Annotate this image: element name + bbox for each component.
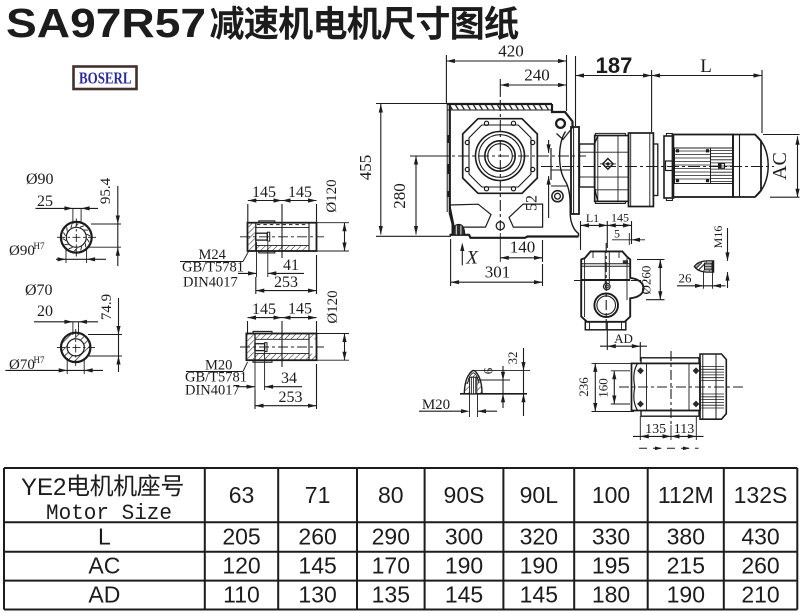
svg-text:34: 34 (281, 370, 297, 387)
svg-text:41: 41 (283, 257, 299, 274)
svg-text:300: 300 (445, 524, 483, 550)
svg-text:AC: AC (88, 553, 120, 579)
svg-text:145: 145 (298, 553, 336, 579)
svg-text:Motor Size: Motor Size (46, 501, 172, 526)
svg-text:95.4: 95.4 (98, 177, 114, 204)
svg-text:420: 420 (498, 42, 524, 61)
svg-text:90L: 90L (520, 482, 559, 508)
svg-text:205: 205 (222, 524, 260, 550)
svg-text:170: 170 (372, 553, 410, 579)
svg-text:135: 135 (645, 422, 666, 437)
svg-text:X: X (465, 248, 479, 269)
svg-text:132S: 132S (734, 482, 788, 508)
svg-text:236: 236 (576, 377, 591, 397)
svg-text:190: 190 (667, 582, 705, 608)
svg-text:160: 160 (596, 378, 611, 398)
svg-text:90S: 90S (444, 482, 485, 508)
svg-text:Ø70: Ø70 (25, 282, 53, 299)
svg-text:380: 380 (667, 524, 705, 550)
svg-text:BOSERL: BOSERL (79, 69, 132, 88)
svg-text:Ø90: Ø90 (9, 243, 35, 259)
svg-text:112M: 112M (658, 482, 714, 508)
svg-text:455: 455 (356, 155, 375, 181)
svg-text:DIN4017: DIN4017 (185, 383, 240, 399)
svg-text:190: 190 (445, 553, 483, 579)
svg-text:145: 145 (252, 184, 276, 201)
svg-text:L: L (98, 524, 111, 550)
svg-text:80: 80 (378, 482, 404, 508)
svg-text:280: 280 (390, 183, 409, 209)
svg-text:32: 32 (505, 352, 520, 365)
svg-text:210: 210 (741, 582, 779, 608)
svg-text:190: 190 (520, 553, 558, 579)
svg-text:20: 20 (37, 303, 53, 320)
svg-text:DIN4017: DIN4017 (183, 275, 238, 291)
svg-text:AC: AC (769, 152, 791, 180)
svg-text:H7: H7 (34, 241, 45, 251)
svg-text:145: 145 (611, 211, 629, 225)
svg-text:253: 253 (279, 389, 303, 406)
svg-text:240: 240 (524, 66, 550, 85)
svg-text:L1: L1 (586, 211, 599, 225)
svg-text:130: 130 (298, 582, 336, 608)
svg-text:253: 253 (274, 274, 298, 291)
svg-text:Ø90: Ø90 (26, 171, 54, 188)
svg-text:330: 330 (592, 524, 630, 550)
svg-text:AD: AD (88, 582, 120, 608)
svg-text:L: L (700, 56, 712, 77)
svg-text:110: 110 (223, 582, 260, 608)
svg-text:52: 52 (524, 195, 541, 211)
svg-text:140: 140 (510, 238, 536, 257)
svg-text:SA97R57: SA97R57 (6, 0, 206, 46)
svg-text:145: 145 (288, 184, 312, 201)
svg-text:145: 145 (288, 301, 312, 318)
svg-text:135: 135 (372, 582, 410, 608)
svg-text:71: 71 (305, 482, 331, 508)
svg-text:Ø260: Ø260 (639, 266, 654, 295)
svg-text:301: 301 (485, 263, 511, 282)
svg-text:74.9: 74.9 (99, 294, 115, 320)
svg-text:215: 215 (667, 553, 705, 579)
svg-text:120: 120 (222, 553, 260, 579)
svg-text:M20: M20 (422, 397, 450, 413)
svg-text:260: 260 (298, 524, 336, 550)
svg-text:290: 290 (372, 524, 410, 550)
svg-text:320: 320 (520, 524, 558, 550)
svg-text:26: 26 (679, 271, 693, 286)
svg-text:100: 100 (592, 482, 630, 508)
svg-text:145: 145 (520, 582, 558, 608)
svg-text:187: 187 (596, 53, 633, 78)
svg-text:AD: AD (614, 331, 633, 346)
svg-text:260: 260 (741, 553, 779, 579)
svg-text:5: 5 (614, 227, 620, 241)
svg-text:145: 145 (445, 582, 483, 608)
svg-text:113: 113 (674, 422, 694, 437)
svg-text:Ø120: Ø120 (325, 290, 341, 323)
svg-text:GB/T5781: GB/T5781 (182, 260, 244, 276)
svg-text:25: 25 (37, 193, 53, 210)
svg-text:M16: M16 (711, 226, 725, 249)
svg-text:195: 195 (592, 553, 630, 579)
svg-text:430: 430 (741, 524, 779, 550)
svg-text:YE2: YE2 (21, 474, 66, 501)
svg-text:180: 180 (592, 582, 630, 608)
svg-text:145: 145 (252, 301, 276, 318)
svg-text:Ø120: Ø120 (324, 179, 340, 212)
svg-text:63: 63 (229, 482, 255, 508)
svg-text:H7: H7 (34, 355, 45, 365)
